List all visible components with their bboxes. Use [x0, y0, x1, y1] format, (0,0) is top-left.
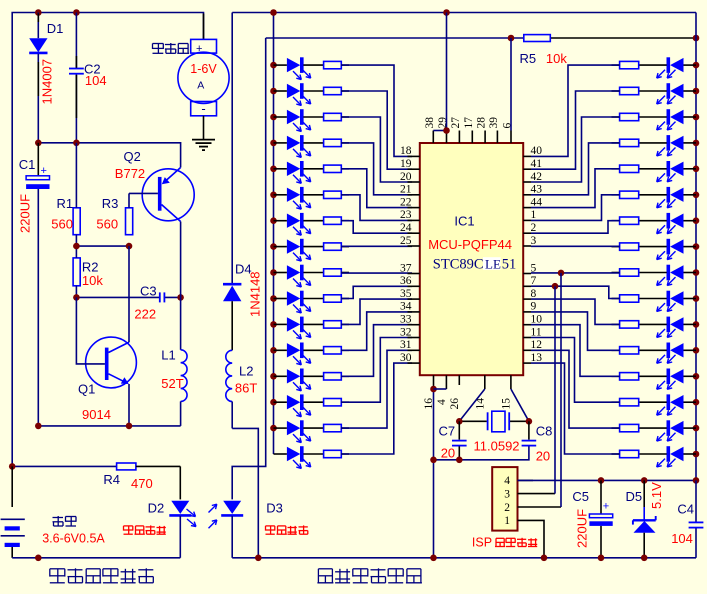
svg-text:28: 28 [476, 117, 488, 129]
svg-text:1: 1 [504, 515, 510, 527]
svg-text:40: 40 [531, 145, 543, 157]
svg-text:11: 11 [531, 326, 542, 338]
svg-text:18: 18 [400, 145, 412, 157]
svg-text:8: 8 [531, 288, 537, 300]
svg-text:A: A [197, 80, 204, 92]
svg-text:24: 24 [400, 222, 412, 234]
svg-text:17: 17 [463, 117, 475, 129]
svg-text:1N4148: 1N4148 [248, 271, 263, 317]
svg-text:222: 222 [134, 306, 156, 321]
svg-text:30: 30 [400, 352, 412, 364]
svg-text:10k: 10k [546, 51, 567, 66]
svg-text:38: 38 [424, 117, 436, 129]
svg-text:21: 21 [400, 184, 412, 196]
svg-text:IC1: IC1 [454, 214, 474, 229]
svg-text:C5: C5 [572, 489, 589, 504]
svg-text:MCU-PQFP44: MCU-PQFP44 [428, 237, 512, 252]
svg-text:104: 104 [671, 531, 693, 546]
svg-text:220UF: 220UF [575, 509, 590, 548]
svg-text:B772: B772 [115, 166, 145, 181]
svg-text:5.1V: 5.1V [649, 482, 664, 509]
svg-text:13: 13 [531, 352, 543, 364]
svg-text:C7: C7 [439, 424, 456, 439]
svg-text:34: 34 [400, 301, 412, 313]
svg-text:4: 4 [436, 399, 448, 405]
svg-text:D2: D2 [148, 500, 165, 515]
svg-text:15: 15 [500, 398, 512, 410]
svg-text:20: 20 [400, 171, 412, 183]
svg-text:5: 5 [531, 262, 537, 274]
svg-text:51: 51 [502, 256, 517, 272]
svg-text:41: 41 [531, 158, 543, 170]
svg-text:12: 12 [531, 339, 543, 351]
svg-text:Q2: Q2 [124, 149, 141, 164]
svg-text:52T: 52T [161, 376, 183, 391]
svg-text:27: 27 [450, 117, 462, 129]
svg-text:9014: 9014 [82, 407, 111, 422]
svg-text:35: 35 [400, 288, 412, 300]
svg-text:10k: 10k [82, 273, 103, 288]
svg-text:10: 10 [531, 314, 543, 326]
svg-text:560: 560 [96, 217, 118, 232]
svg-text:2: 2 [531, 222, 537, 234]
svg-text:9: 9 [531, 301, 537, 313]
svg-text:3: 3 [531, 235, 537, 247]
svg-text:23: 23 [400, 209, 412, 221]
svg-text:-: - [201, 101, 205, 116]
svg-text:11.0592: 11.0592 [474, 439, 520, 454]
svg-text:D5: D5 [626, 489, 643, 504]
svg-text:L1: L1 [161, 348, 175, 363]
svg-text:1N4007: 1N4007 [40, 59, 55, 105]
svg-text:R3: R3 [102, 196, 119, 211]
svg-text:43: 43 [531, 184, 543, 196]
svg-text:7: 7 [531, 275, 537, 287]
svg-text:20: 20 [536, 449, 550, 464]
svg-text:20: 20 [441, 446, 455, 461]
svg-text:22: 22 [400, 196, 412, 208]
svg-text:104: 104 [85, 73, 107, 88]
svg-text:+: + [603, 501, 609, 513]
svg-text:+: + [196, 43, 202, 55]
svg-text:31: 31 [400, 339, 412, 351]
svg-text:C3: C3 [140, 284, 157, 299]
svg-text:R1: R1 [57, 196, 74, 211]
svg-text:D3: D3 [266, 500, 283, 515]
svg-text:L2: L2 [239, 364, 253, 379]
svg-text:ISP: ISP [472, 536, 492, 550]
svg-text:37: 37 [400, 262, 412, 274]
svg-text:4: 4 [504, 475, 510, 487]
svg-text:1: 1 [531, 209, 537, 221]
svg-text:LE: LE [485, 256, 501, 271]
svg-text:33: 33 [400, 314, 412, 326]
svg-text:3: 3 [504, 488, 510, 500]
svg-text:+: + [41, 165, 47, 177]
svg-text:42: 42 [531, 171, 543, 183]
svg-text:470: 470 [131, 476, 153, 491]
svg-text:39: 39 [488, 117, 500, 129]
svg-text:220UF: 220UF [18, 194, 33, 233]
svg-text:R4: R4 [103, 472, 120, 487]
svg-text:D1: D1 [47, 21, 64, 36]
svg-text:26: 26 [449, 398, 461, 410]
svg-text:C8: C8 [536, 424, 553, 439]
svg-text:86T: 86T [235, 381, 257, 396]
svg-text:3.6-6V0.5A: 3.6-6V0.5A [42, 531, 105, 545]
svg-text:19: 19 [400, 158, 412, 170]
svg-text:C4: C4 [677, 502, 694, 517]
svg-text:C1: C1 [19, 157, 36, 172]
svg-text:Q1: Q1 [78, 382, 95, 397]
svg-text:560: 560 [51, 217, 73, 232]
svg-text:32: 32 [400, 326, 412, 338]
svg-text:2: 2 [504, 502, 510, 514]
svg-text:25: 25 [400, 235, 412, 247]
svg-text:R5: R5 [520, 51, 537, 66]
svg-text:36: 36 [400, 275, 412, 287]
svg-text:STC89C: STC89C [433, 256, 484, 272]
svg-text:44: 44 [531, 196, 543, 208]
svg-text:1-6V: 1-6V [190, 62, 217, 76]
